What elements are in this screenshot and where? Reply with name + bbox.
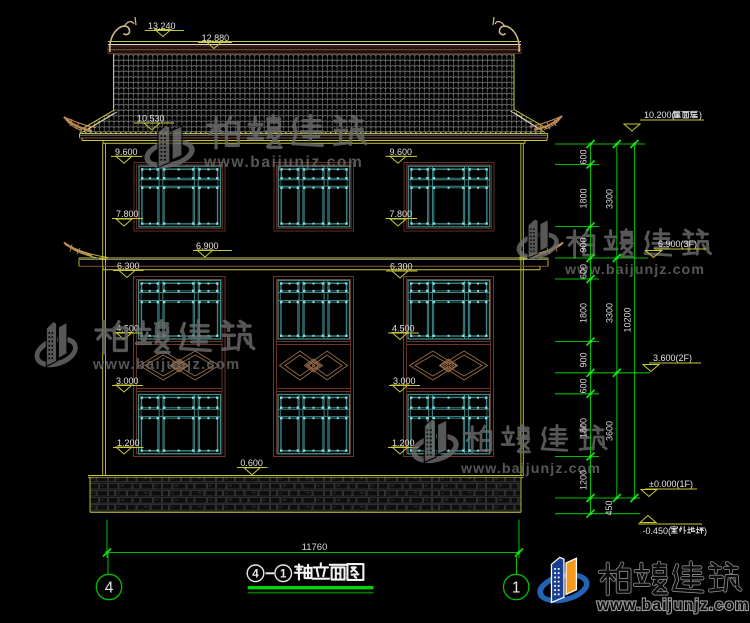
svg-text:www.baijunjz.com: www.baijunjz.com [92,357,241,373]
svg-text:-0.450(: -0.450( [643,526,672,536]
svg-text:900: 900 [579,352,589,367]
svg-text:11760: 11760 [302,542,328,553]
svg-text:1800: 1800 [579,418,589,438]
svg-text:7.800: 7.800 [390,209,413,219]
svg-text:7.800: 7.800 [116,209,139,219]
svg-text:9.600: 9.600 [115,147,138,157]
svg-text:10.530: 10.530 [137,114,165,124]
svg-text:600: 600 [579,378,589,393]
svg-text:6.300: 6.300 [117,261,140,271]
svg-text:3300: 3300 [605,189,615,209]
svg-text:4: 4 [105,580,114,597]
svg-text:1800: 1800 [579,188,589,208]
svg-text:1: 1 [512,580,521,597]
svg-text:450: 450 [604,500,614,515]
svg-text:10.200(: 10.200( [644,110,675,120]
svg-text:4: 4 [252,569,259,581]
svg-text:900: 900 [579,237,589,252]
svg-text:9.600: 9.600 [390,147,413,157]
svg-text:): ) [699,110,702,120]
svg-text:600: 600 [579,264,589,279]
svg-text:): ) [704,526,707,536]
svg-text:10200: 10200 [623,307,633,332]
svg-text:±0.000(1F): ±0.000(1F) [649,479,693,489]
svg-text:3.600(2F): 3.600(2F) [653,353,692,363]
svg-text:3300: 3300 [605,303,615,323]
svg-text:3600: 3600 [605,421,615,441]
svg-text:600: 600 [579,149,589,164]
svg-text:0.600: 0.600 [240,458,263,468]
svg-text:www.baijunjz.com: www.baijunjz.com [203,154,363,171]
svg-text:6.300: 6.300 [390,262,413,272]
svg-text:1200: 1200 [579,470,589,490]
svg-text:1: 1 [280,569,287,581]
svg-text:6.900(3F): 6.900(3F) [658,239,697,249]
svg-text:1800: 1800 [579,303,589,323]
svg-text:www.baijunjz.com: www.baijunjz.com [596,597,750,614]
